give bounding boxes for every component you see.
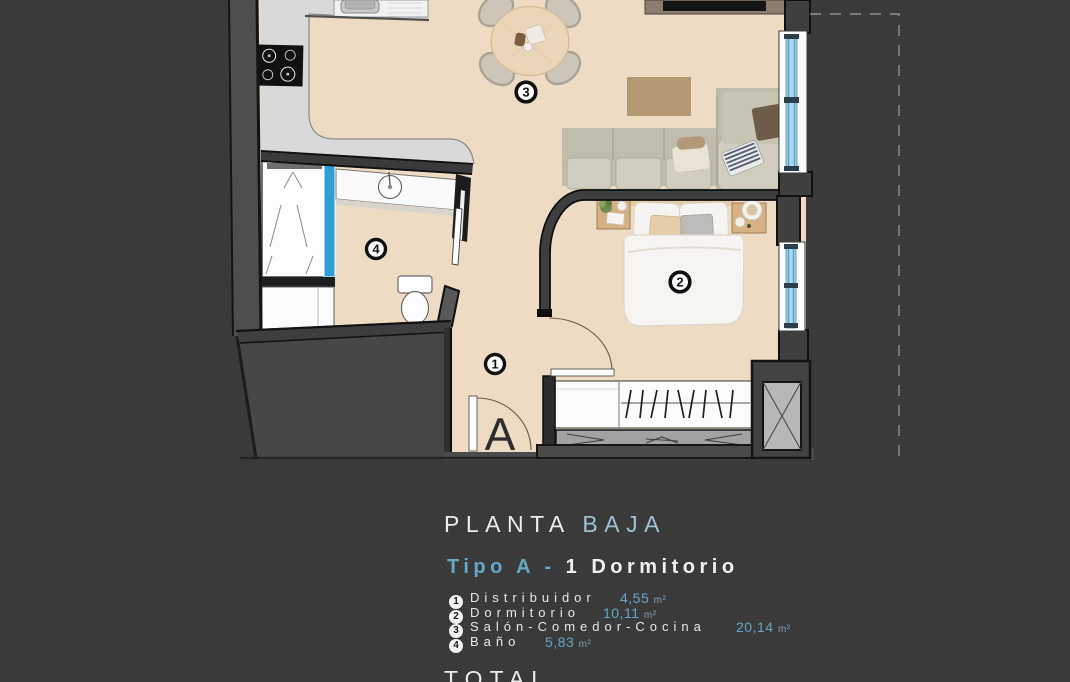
svg-text:1: 1: [491, 356, 498, 371]
svg-text:4: 4: [372, 241, 380, 256]
svg-text:2: 2: [676, 274, 683, 289]
svg-text:A: A: [485, 408, 516, 460]
svg-text:3: 3: [522, 84, 529, 99]
